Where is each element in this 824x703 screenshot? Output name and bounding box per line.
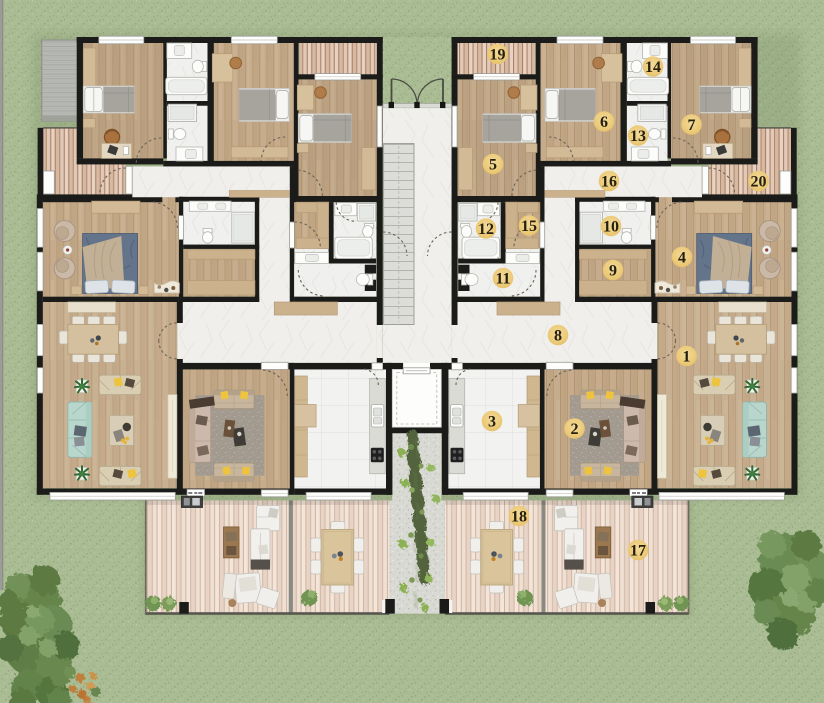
svg-text:20: 20 [751,174,767,191]
svg-text:6: 6 [600,114,608,131]
svg-text:3: 3 [488,414,496,431]
svg-text:10: 10 [603,219,619,236]
svg-text:9: 9 [609,263,617,280]
svg-text:11: 11 [495,271,510,288]
svg-text:2: 2 [571,421,579,438]
svg-text:16: 16 [601,174,617,191]
svg-text:5: 5 [489,157,497,174]
svg-text:15: 15 [521,218,537,235]
svg-text:13: 13 [630,128,646,145]
svg-text:18: 18 [511,509,527,526]
svg-text:17: 17 [630,543,646,560]
svg-text:19: 19 [490,47,506,64]
svg-text:7: 7 [688,117,696,134]
svg-text:4: 4 [678,250,686,267]
svg-text:14: 14 [645,59,661,76]
svg-text:12: 12 [478,221,494,238]
svg-text:8: 8 [554,328,562,345]
svg-text:1: 1 [683,349,691,366]
